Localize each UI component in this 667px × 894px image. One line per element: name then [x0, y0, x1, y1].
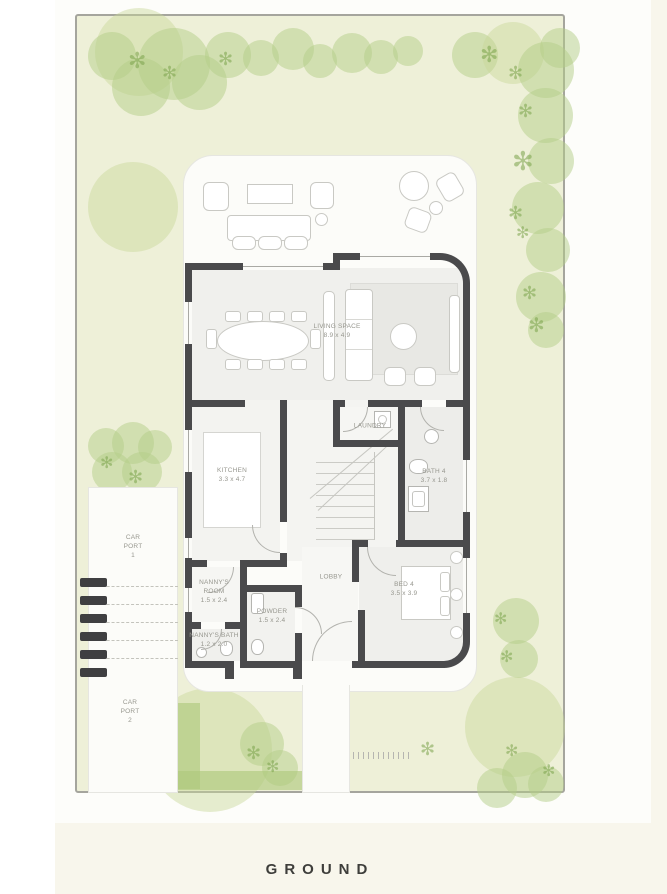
wall	[358, 610, 365, 668]
page-margin	[0, 0, 55, 894]
planter	[178, 771, 304, 790]
sofa-cushion	[232, 236, 256, 250]
wall	[352, 661, 372, 668]
wall	[446, 400, 466, 407]
wall	[240, 560, 287, 567]
toilet	[251, 639, 264, 655]
foliage-icon: ✻	[512, 148, 534, 174]
pillar	[80, 596, 107, 605]
wall	[187, 400, 245, 407]
foliage-icon: ✻	[505, 744, 518, 760]
sofa-seam	[346, 319, 372, 320]
dining-chair	[291, 359, 307, 370]
pillar	[80, 578, 107, 587]
side-table	[315, 213, 328, 226]
foliage-icon: ✻	[218, 50, 233, 68]
dining-chair	[225, 311, 241, 322]
sofa-seam	[346, 349, 372, 350]
tree-canopy	[540, 28, 580, 68]
armchair	[203, 182, 229, 211]
pouf	[414, 367, 436, 386]
window	[185, 538, 192, 558]
foliage-icon: ✻	[100, 456, 113, 472]
room-label-carport-1: CAR PORT 1	[121, 534, 145, 560]
wall	[463, 408, 470, 460]
foliage-icon: ✻	[162, 64, 177, 82]
foliage-icon: ✻	[508, 204, 523, 222]
foliage-icon: ✻	[508, 64, 523, 82]
foliage-icon: ✻	[128, 50, 146, 72]
window	[243, 263, 323, 270]
foliage-icon: ✻	[494, 612, 507, 628]
wall-stub	[293, 661, 302, 679]
dining-chair	[269, 311, 285, 322]
coffee-table	[390, 323, 417, 350]
foliage-icon: ✻	[516, 226, 529, 242]
foliage-icon: ✻	[528, 316, 545, 336]
tree-canopy	[526, 228, 570, 272]
stairs	[316, 462, 374, 540]
wall	[463, 512, 470, 558]
sofa-cushion	[284, 236, 308, 250]
room-label-living: LIVING SPACE 8.9 x 4.9	[313, 323, 360, 341]
wall	[187, 622, 201, 629]
foliage-icon: ✻	[500, 650, 513, 666]
dining-chair	[269, 359, 285, 370]
shower-tray	[412, 491, 425, 507]
foliage-icon: ✻	[518, 102, 533, 120]
wall	[240, 560, 247, 668]
foliage-icon: ✻	[266, 760, 279, 776]
room-label-bath4: BATH 4 3.7 x 1.8	[421, 468, 448, 486]
fence-ticks	[353, 752, 409, 759]
tree-canopy	[528, 138, 574, 184]
room-label-bed4: BED 4 3.5 x 3.9	[391, 581, 418, 599]
sofa-cushion	[258, 236, 282, 250]
window	[463, 460, 470, 512]
side-table	[450, 551, 463, 564]
side-table	[450, 588, 463, 601]
pillow	[440, 572, 450, 592]
dining-chair	[206, 329, 217, 349]
foliage-icon: ✻	[246, 744, 261, 762]
coffee-table	[247, 184, 293, 204]
sink	[424, 429, 439, 444]
room-label-lobby: LOBBY	[320, 574, 343, 583]
window	[360, 253, 430, 260]
entry-path	[302, 685, 350, 793]
room-label-powder: POWDER 1.5 x 2.4	[257, 608, 287, 626]
wall	[187, 560, 207, 567]
wall	[280, 400, 287, 522]
wall	[365, 661, 445, 668]
floor-plan-page: ✻ ✻ ✻ ✻ ✻ ✻ ✻ ✻ ✻ ✻ ✻ ✻ ✻ ✻ ✻ ✻ ✻ ✻ ✻ ✻	[0, 0, 667, 894]
console	[449, 295, 460, 373]
wall	[398, 400, 405, 547]
foliage-icon: ✻	[542, 764, 555, 780]
dining-chair	[291, 311, 307, 322]
room-label-nannys-bath: NANNY'S BATH 1.2 x 2.0	[188, 632, 240, 650]
side-table	[429, 201, 443, 215]
wall	[396, 540, 463, 547]
pillar	[80, 650, 107, 659]
stairs-divider	[374, 452, 375, 540]
foliage-icon: ✻	[128, 468, 143, 486]
window	[463, 558, 470, 613]
dining-chair	[247, 359, 263, 370]
window	[185, 430, 192, 472]
wall	[295, 585, 302, 607]
wall-stub	[225, 661, 234, 679]
wall	[368, 400, 398, 407]
tree-canopy	[393, 36, 423, 66]
room-label-kitchen: KITCHEN 3.3 x 4.7	[217, 467, 247, 485]
dining-chair	[247, 311, 263, 322]
room-label-laundry: LAUNDRY	[354, 423, 386, 432]
dining-table	[217, 321, 309, 361]
pillar	[80, 668, 107, 677]
foliage-icon: ✻	[420, 740, 435, 758]
wall	[352, 540, 359, 582]
window	[185, 588, 192, 612]
tree-canopy	[477, 768, 517, 808]
wall	[463, 283, 470, 410]
floor-caption: GROUND	[266, 861, 375, 878]
patio-table	[399, 171, 429, 201]
pillow	[440, 596, 450, 616]
pillar	[80, 632, 107, 641]
foliage-icon: ✻	[480, 44, 498, 66]
foliage-icon: ✻	[522, 284, 537, 302]
pillar	[80, 614, 107, 623]
window	[185, 302, 192, 344]
dining-chair	[225, 359, 241, 370]
tree-canopy	[88, 162, 178, 252]
room-label-nannys-room: NANNY'S ROOM 1.5 x 2.4	[196, 579, 232, 605]
pouf	[384, 367, 406, 386]
armchair	[310, 182, 334, 209]
wall	[333, 440, 403, 447]
room-label-carport-2: CAR PORT 2	[118, 699, 142, 725]
wall	[247, 585, 302, 592]
